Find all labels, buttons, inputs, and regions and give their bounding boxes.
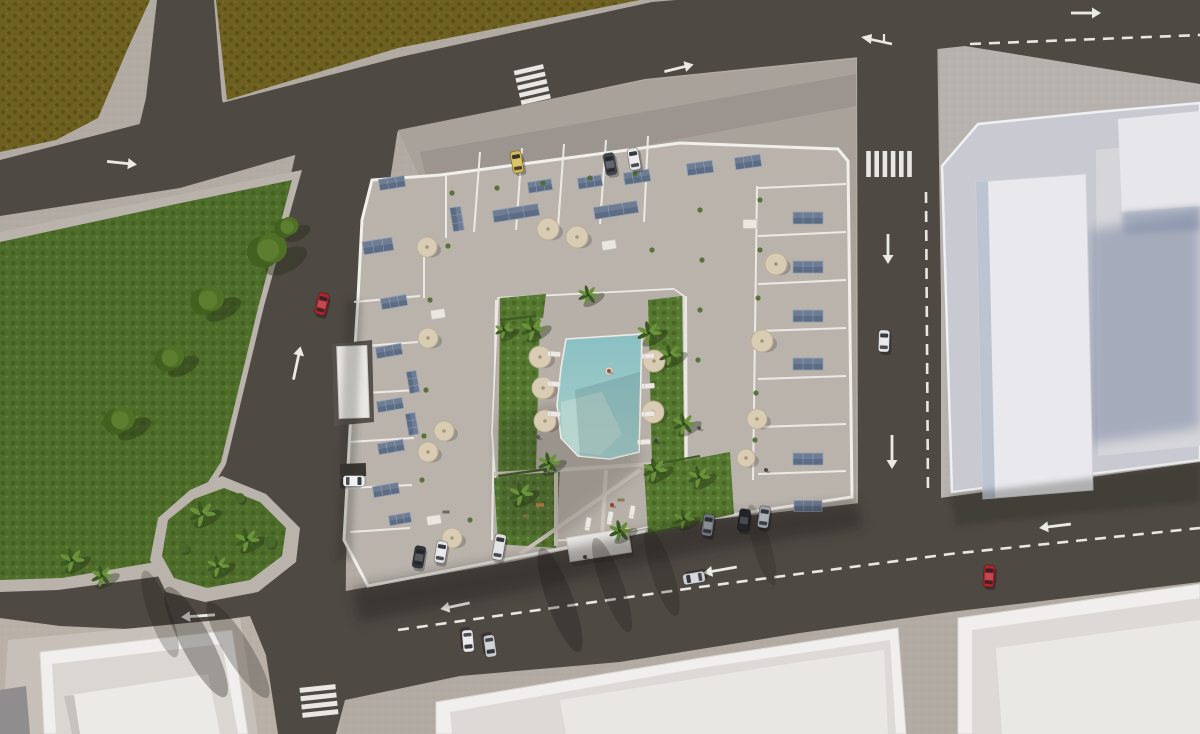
cars [340,476,365,489]
aerial-render [0,0,1200,734]
solar-panels [793,310,823,322]
sun-loungers [547,411,560,417]
cars [983,565,998,591]
playground-items [523,515,529,518]
terrace-tables [601,239,616,250]
solar-panels [793,358,823,370]
playground-items [536,503,544,507]
viewport [0,0,1200,734]
road-right-vertical [857,27,941,506]
playground-items [618,499,625,502]
solar-panels [793,212,823,224]
sun-loungers [637,439,650,445]
playground-items [443,511,450,514]
sun-loungers [547,351,560,357]
sun-loungers [641,383,654,389]
neighbor-ne-volume [1118,111,1200,212]
terrace-tables [743,220,757,229]
neighbor-slab-shadow [1090,212,1200,444]
solar-panels [793,261,823,273]
terrace-tables [426,514,441,525]
solar-panels [793,453,823,465]
lawn-east [648,296,684,465]
terrace-tables [430,308,445,319]
sun-loungers [641,353,654,359]
building-far-left [0,686,30,734]
sun-loungers [641,411,654,417]
cars [878,330,892,355]
sun-loungers [547,381,560,387]
